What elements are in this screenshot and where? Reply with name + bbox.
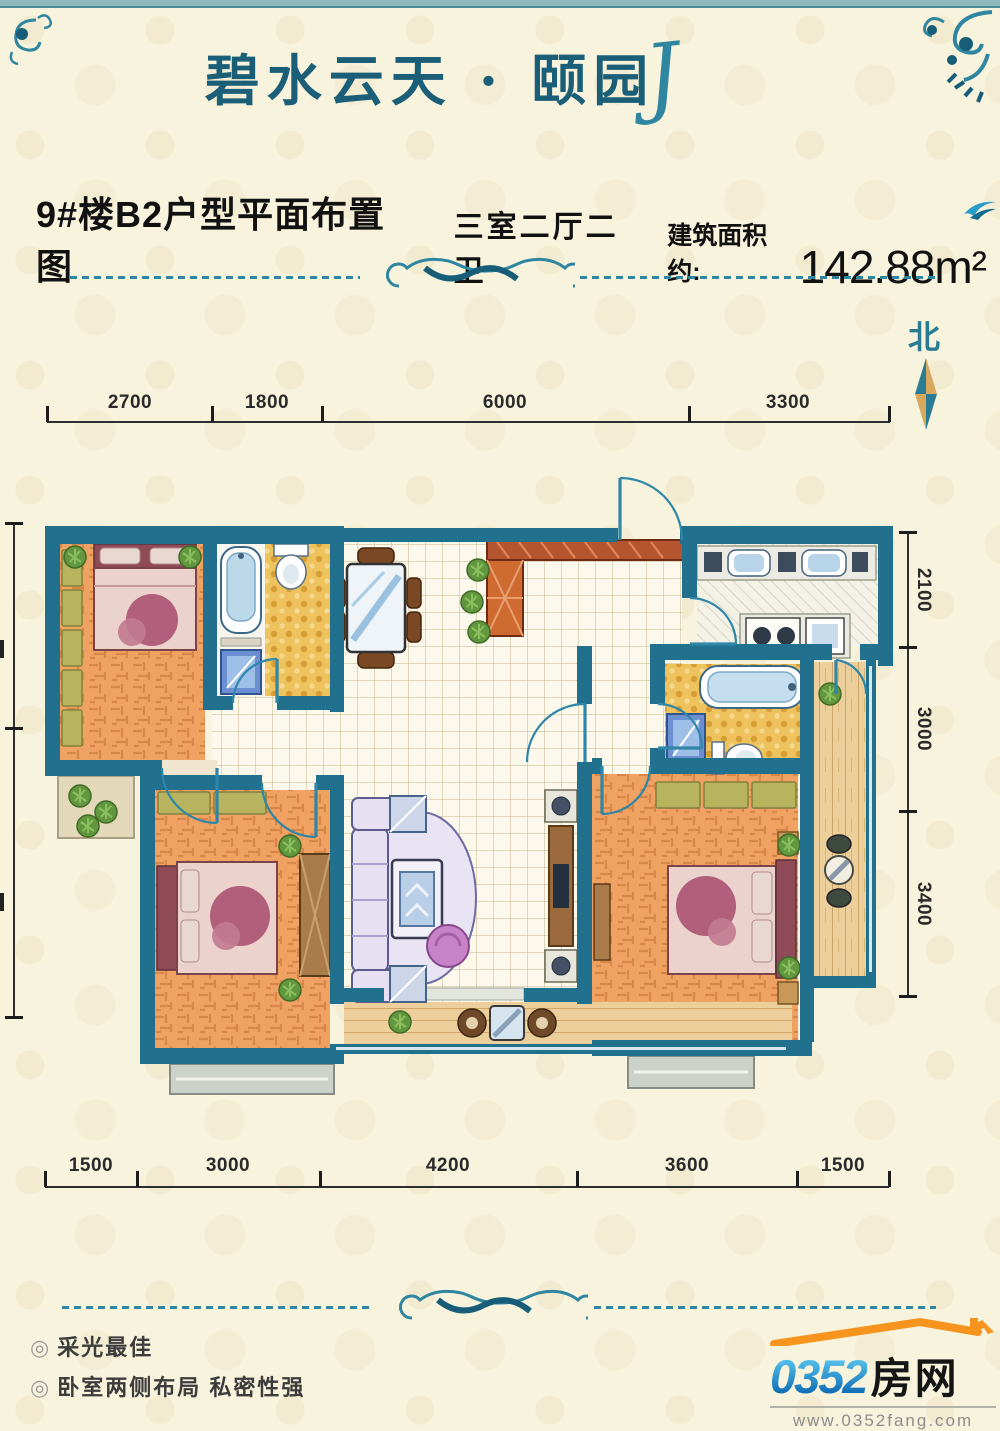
dim-tick bbox=[319, 1171, 322, 1187]
north-arrow-icon bbox=[914, 356, 938, 432]
kitchen-counter bbox=[697, 546, 876, 580]
dim-tick bbox=[576, 1171, 579, 1187]
floor-plan bbox=[0, 470, 1000, 1120]
logo-text-row: 0352 房网 bbox=[770, 1345, 996, 1406]
top-border bbox=[0, 0, 1000, 8]
tv-cabinet bbox=[545, 790, 577, 982]
dim-tick bbox=[211, 406, 214, 422]
divider-dash-right bbox=[580, 276, 935, 279]
dim-tick bbox=[46, 406, 49, 422]
logo-url: www.0352fang.com bbox=[770, 1406, 996, 1431]
dim-tick bbox=[888, 406, 891, 422]
divider2-dash-left bbox=[62, 1306, 372, 1309]
dim-bottom-3: 4200 bbox=[418, 1155, 478, 1177]
balcony-right-floor bbox=[812, 662, 866, 976]
dim-top-4: 3300 bbox=[758, 392, 818, 414]
divider-scroll-icon bbox=[365, 252, 575, 300]
dim-bottom-1: 1500 bbox=[61, 1155, 121, 1177]
dim-tick bbox=[688, 406, 691, 422]
dim-bottom-4: 3600 bbox=[657, 1155, 717, 1177]
dim-bottom-5: 1500 bbox=[813, 1155, 873, 1177]
dim-top-3: 6000 bbox=[475, 392, 535, 414]
roof-icon bbox=[770, 1316, 996, 1346]
dim-tick bbox=[796, 1171, 799, 1187]
bullet-icon: ◎ bbox=[30, 1335, 51, 1360]
plan-title: 9#楼B2户型平面布置图 bbox=[36, 186, 414, 290]
bathtub-2 bbox=[700, 666, 804, 708]
divider-dash-left bbox=[70, 276, 360, 279]
feature-1-text: 采光最佳 bbox=[57, 1335, 153, 1360]
divider2-dash-right bbox=[594, 1306, 936, 1309]
dim-top-2: 1800 bbox=[237, 392, 297, 414]
toilet-1 bbox=[274, 544, 308, 589]
divider2-scroll-icon bbox=[378, 1284, 588, 1332]
bathtub-1 bbox=[221, 547, 261, 633]
feature-2: ◎卧室两侧布局 私密性强 bbox=[30, 1370, 305, 1402]
bullet-icon: ◎ bbox=[30, 1375, 51, 1400]
corner-ornament-right-icon bbox=[860, 8, 1000, 123]
wave-icon bbox=[962, 192, 998, 222]
dim-bottom-2: 3000 bbox=[198, 1155, 258, 1177]
dim-tick bbox=[321, 406, 324, 422]
dim-line-top bbox=[47, 421, 890, 423]
north-label: 北 bbox=[908, 312, 940, 358]
corner-ornament-left-icon bbox=[2, 8, 72, 78]
dim-tick bbox=[44, 1171, 47, 1187]
area-value: 142.88m² bbox=[800, 244, 986, 290]
logo-word: 房网 bbox=[871, 1345, 959, 1406]
dim-tick bbox=[888, 1171, 891, 1187]
dim-top-1: 2700 bbox=[100, 392, 160, 414]
site-logo: 0352 房网 www.0352fang.com bbox=[770, 1316, 996, 1431]
dim-line-bottom bbox=[45, 1186, 889, 1188]
dim-tick bbox=[136, 1171, 139, 1187]
logo-digits: 0352 bbox=[770, 1349, 867, 1404]
feature-2-text: 卧室两侧布局 私密性强 bbox=[57, 1375, 305, 1400]
shower-basin bbox=[667, 714, 705, 762]
feature-1: ◎采光最佳 bbox=[30, 1330, 153, 1362]
